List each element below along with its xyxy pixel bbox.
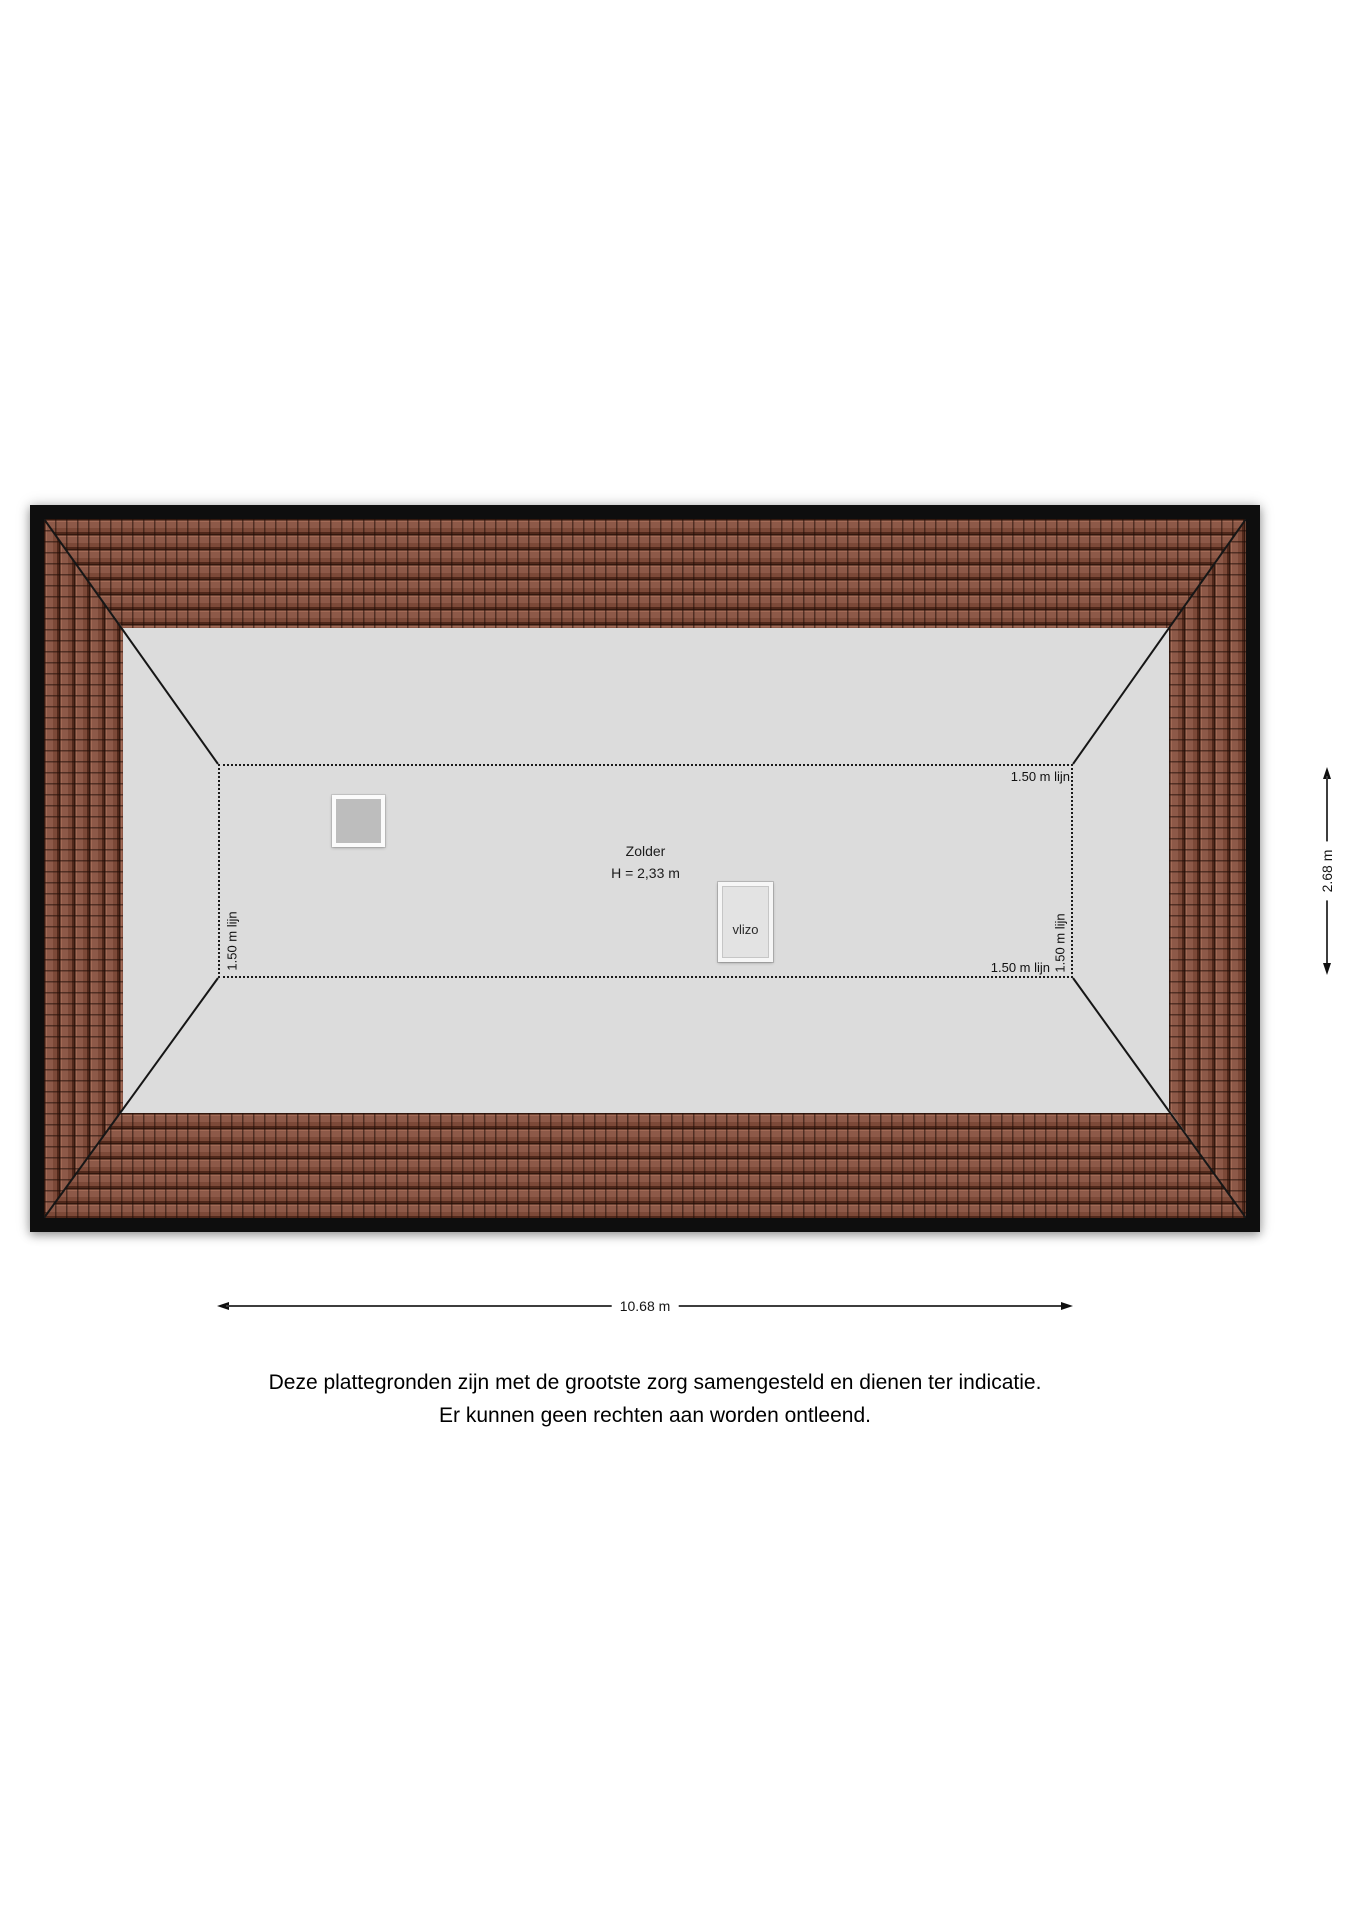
width-dimension-value: 10.68 m: [612, 1298, 679, 1314]
room-height-label: H = 2,33 m: [218, 862, 1073, 884]
roof-plan: Zolder H = 2,33 m vlizo 1.50 m lijn 1.50…: [44, 519, 1246, 1218]
floorplan-page: Zolder H = 2,33 m vlizo 1.50 m lijn 1.50…: [0, 0, 1358, 1920]
knee-wall-label-right-side: 1.50 m lijn: [1053, 913, 1068, 972]
hip-line-top-right: [1073, 519, 1246, 764]
disclaimer: Deze plattegronden zijn met de grootste …: [30, 1366, 1280, 1432]
dimension-arrow-right-icon: [1061, 1302, 1073, 1310]
skylight: [332, 795, 385, 847]
disclaimer-line2: Er kunnen geen rechten aan worden ontlee…: [30, 1399, 1280, 1432]
width-dimension: 10.68 m: [217, 1296, 1073, 1316]
depth-dimension-value: 2.68 m: [1319, 842, 1335, 901]
knee-wall-label-top-right: 1.50 m lijn: [1011, 769, 1070, 784]
vlizo-hatch: vlizo: [718, 882, 773, 962]
vlizo-label: vlizo: [732, 908, 758, 937]
roof-plan-frame: Zolder H = 2,33 m vlizo 1.50 m lijn 1.50…: [30, 505, 1260, 1232]
dimension-arrow-down-icon: [1323, 963, 1331, 975]
knee-wall-label-bottom-right: 1.50 m lijn: [991, 960, 1050, 975]
hip-line-top-left: [44, 519, 218, 764]
disclaimer-line1: Deze plattegronden zijn met de grootste …: [30, 1366, 1280, 1399]
hip-line-bottom-left: [44, 978, 218, 1218]
knee-wall-label-left-side: 1.50 m lijn: [225, 911, 240, 970]
depth-dimension: 2.68 m: [1317, 767, 1337, 975]
hip-line-bottom-right: [1073, 978, 1246, 1218]
